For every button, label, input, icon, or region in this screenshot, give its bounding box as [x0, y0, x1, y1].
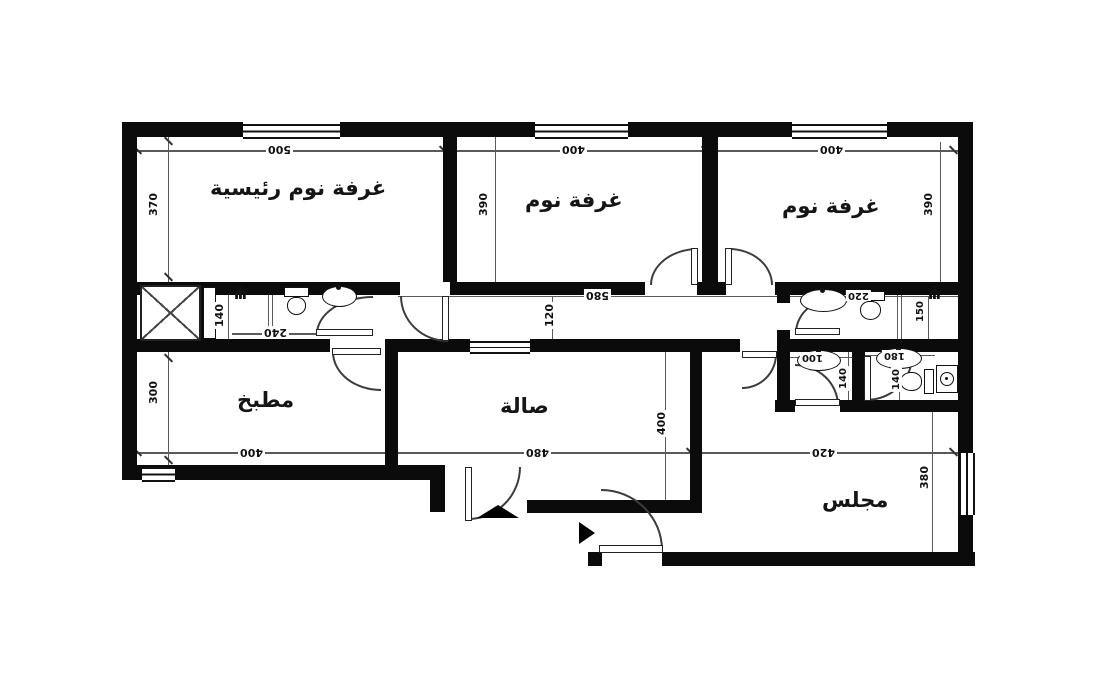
dim-master-width: 500 [266, 143, 293, 156]
door-leaf [691, 248, 698, 285]
dim-bed2-height: 390 [477, 191, 490, 218]
wall [777, 339, 958, 352]
room-label-master-bedroom: غرفة نوم رئيسية [210, 176, 386, 200]
dim-majlis-width: 420 [810, 446, 837, 459]
dim-corridor-width: 580 [584, 289, 611, 302]
wall [777, 295, 790, 303]
toilet [284, 287, 309, 297]
wall [697, 282, 726, 295]
tap-icon [820, 288, 825, 293]
wall [122, 122, 243, 137]
dim-line-left-top [168, 137, 169, 282]
toilet [287, 297, 306, 315]
dim-kitchen-width: 400 [238, 446, 265, 459]
dim-hall-height: 400 [655, 410, 668, 437]
pass-through-window [470, 341, 530, 354]
dim-line-bed2 [495, 137, 496, 282]
door-leaf [316, 329, 373, 336]
door-leaf [864, 356, 871, 401]
room-label-kitchen: مطبخ [237, 388, 294, 412]
dim-hall-width: 480 [524, 446, 551, 459]
dim-line-left-kitchen [168, 352, 169, 465]
window [243, 124, 340, 139]
entry-door-leaf [465, 467, 472, 521]
window [142, 467, 175, 482]
wall [840, 400, 958, 412]
room-label-majlis: مجلس [822, 488, 888, 512]
wall [430, 465, 445, 512]
door-leaf [742, 351, 777, 358]
wall [628, 122, 792, 137]
dim-kitchen-height: 300 [147, 379, 160, 406]
room-label-hall: صالة [500, 394, 549, 418]
room-label-bedroom-3: غرفة نوم [782, 194, 880, 218]
wall [702, 137, 718, 282]
partition [901, 295, 902, 339]
dim-masterbath-width: 240 [262, 326, 289, 339]
shower-head-icon: ψ [928, 286, 941, 305]
wall [340, 122, 535, 137]
dim-master-height: 370 [147, 191, 160, 218]
door-leaf [442, 296, 449, 341]
dim-majlis-height: 380 [918, 464, 931, 491]
entry-door-swing [601, 489, 663, 550]
wall [450, 282, 645, 295]
dim-bed2-width: 400 [560, 143, 587, 156]
window [792, 124, 887, 139]
wall [775, 400, 795, 412]
door-swing [729, 248, 773, 285]
wall [530, 339, 740, 352]
door-leaf [725, 248, 732, 285]
dim-wc1-width: 100 [800, 352, 825, 363]
dim-wc1-height: 140 [838, 366, 849, 391]
wall [777, 330, 790, 352]
partition [897, 295, 898, 339]
floor-plan: ψ ψ غرفة نوم رئيسية غرفة نوم غرفة نوم مط… [0, 0, 1096, 693]
dim-bed3-width: 400 [818, 143, 845, 156]
dim-bed3-height: 390 [922, 191, 935, 218]
dim-wc2-width: 180 [882, 350, 907, 361]
dim-bath2-height: 150 [915, 299, 926, 324]
wall [443, 137, 457, 282]
door-swing [400, 296, 448, 342]
wall [588, 552, 602, 566]
dim-bath2-width: 220 [846, 290, 871, 301]
room-label-bedroom-2: غرفة نوم [525, 188, 623, 212]
door-leaf [332, 348, 381, 355]
toilet [924, 369, 934, 394]
dim-line-majlis-v [932, 412, 933, 552]
toilet [860, 301, 881, 320]
wall [385, 339, 398, 465]
washing-machine-dot [945, 377, 948, 380]
tap-icon [336, 285, 341, 290]
dim-masterbath-height: 140 [213, 302, 226, 329]
entry-arrow [477, 505, 519, 518]
dim-corridor-height: 120 [543, 302, 556, 329]
dim-wc2-height: 140 [891, 367, 902, 392]
entry-door-leaf [599, 545, 663, 553]
shower-head-icon: ψ [234, 286, 247, 305]
wall [122, 122, 137, 480]
dim-line-bath1-h [228, 295, 229, 339]
wall [777, 352, 790, 400]
door-leaf [795, 328, 840, 335]
entry-arrow [579, 522, 595, 544]
toilet [900, 372, 922, 391]
wall [662, 552, 975, 566]
door-swing [332, 352, 381, 391]
door-swing [742, 354, 777, 389]
wall [690, 339, 702, 513]
dim-line-bed3 [940, 142, 941, 282]
shaft [140, 285, 201, 341]
door-leaf [795, 399, 840, 406]
window [535, 124, 628, 139]
window [959, 453, 975, 515]
